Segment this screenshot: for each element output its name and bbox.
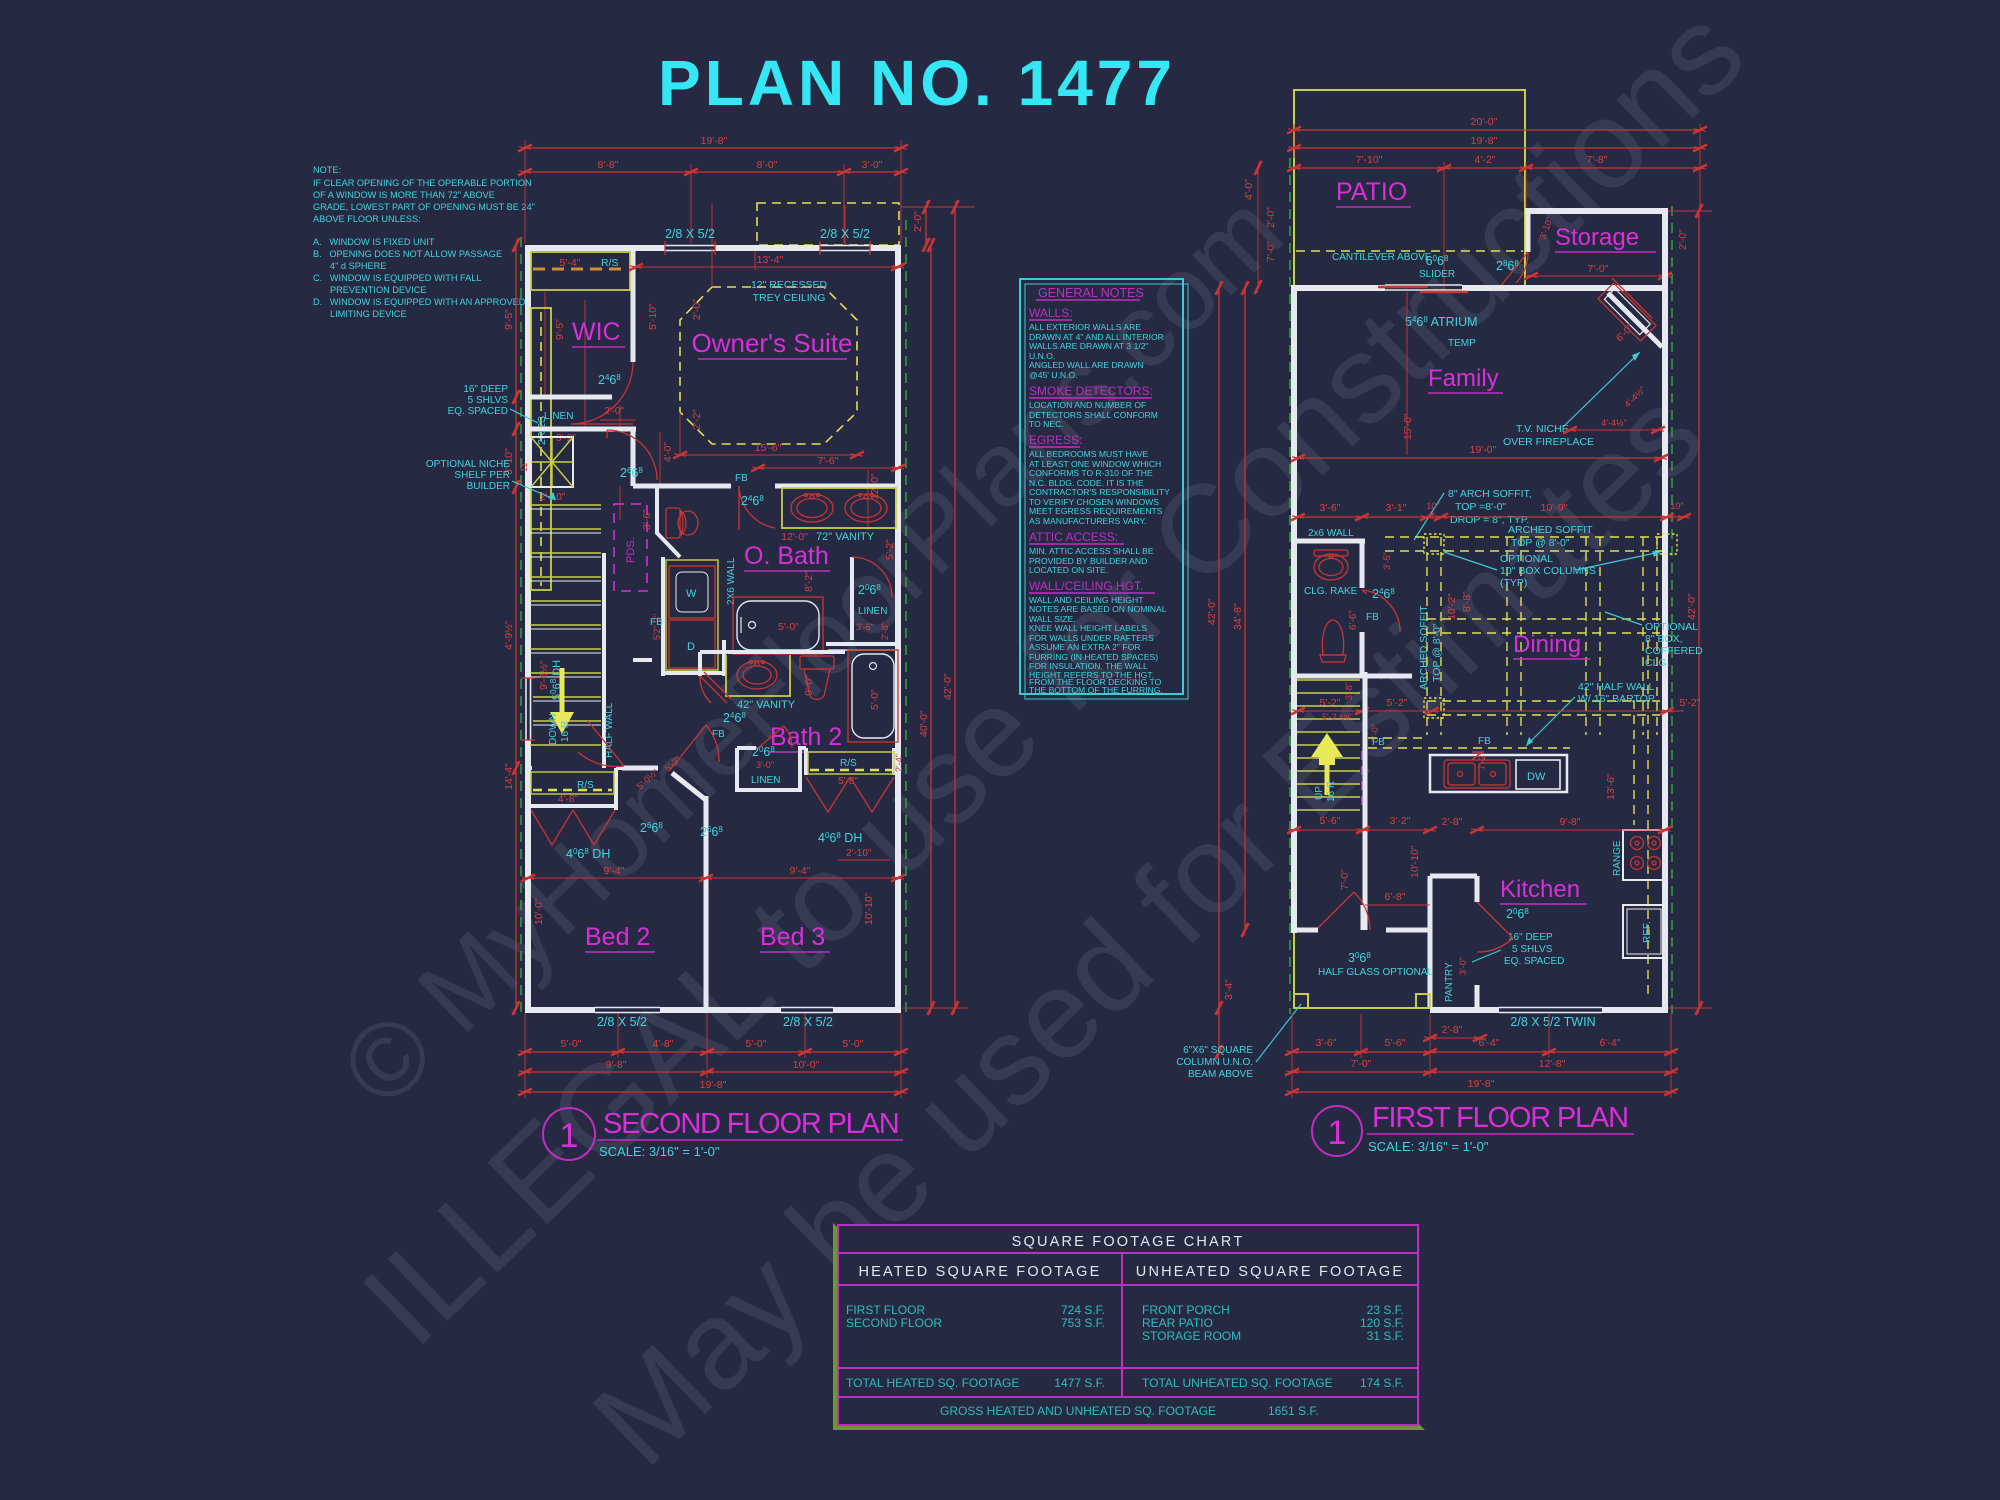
svg-text:6"X6" SQUARE: 6"X6" SQUARE (1183, 1045, 1253, 1056)
svg-text:EGRESS:: EGRESS: (1029, 433, 1082, 447)
svg-text:3'-6": 3'-6" (856, 622, 874, 632)
svg-text:TOP @ 8'-0": TOP @ 8'-0" (1511, 537, 1570, 549)
svg-text:LOCATION AND NUMBER OF: LOCATION AND NUMBER OF (1029, 400, 1146, 410)
svg-text:EQ. SPACED: EQ. SPACED (448, 406, 508, 417)
svg-text:STORAGE ROOM: STORAGE ROOM (1142, 1329, 1241, 1343)
svg-text:KNEE WALL HEIGHT LABELS: KNEE WALL HEIGHT LABELS (1029, 623, 1147, 633)
svg-text:D. WINDOW IS EQUIPPED WITH A: D. WINDOW IS EQUIPPED WITH AN APPROVED (313, 297, 526, 307)
svg-text:14'-4": 14'-4" (503, 763, 515, 790)
svg-text:31 S.F.: 31 S.F. (1367, 1329, 1404, 1343)
svg-text:8'-0": 8'-0" (757, 159, 778, 171)
svg-text:CANTILEVER ABOVE: CANTILEVER ABOVE (1332, 252, 1432, 263)
svg-text:10'-9": 10'-9" (1541, 502, 1568, 514)
svg-text:EQ. SPACED: EQ. SPACED (1504, 956, 1564, 967)
svg-text:Kitchen: Kitchen (1500, 876, 1580, 903)
svg-text:9'-8": 9'-8" (606, 1059, 627, 1071)
svg-text:5'-0": 5'-0" (869, 689, 881, 710)
svg-text:10": 10" (1426, 501, 1439, 511)
svg-text:8'-8": 8'-8" (1461, 591, 1473, 612)
svg-text:LINEN: LINEN (751, 775, 780, 786)
svg-text:OVER FIREPLACE: OVER FIREPLACE (1503, 436, 1594, 448)
svg-text:40'-0": 40'-0" (918, 710, 930, 737)
svg-text:4'-2": 4'-2" (1475, 154, 1496, 166)
svg-text:10'-10": 10'-10" (863, 892, 875, 925)
svg-text:1651 S.F.: 1651 S.F. (1268, 1404, 1319, 1418)
svg-text:SCALE: 3/16" = 1'-0": SCALE: 3/16" = 1'-0" (599, 1144, 720, 1159)
svg-text:2'-0": 2'-0" (604, 406, 624, 417)
svg-text:BUILDER: BUILDER (467, 481, 510, 492)
svg-text:ANGLED WALL ARE DRAWN: ANGLED WALL ARE DRAWN (1029, 360, 1144, 370)
svg-text:W: W (686, 588, 697, 600)
svg-text:4'-0": 4'-0" (663, 442, 674, 462)
svg-text:2x6 WALL: 2x6 WALL (1308, 528, 1354, 539)
svg-text:15'-6": 15'-6" (755, 442, 782, 454)
svg-text:10": 10" (1670, 501, 1683, 511)
svg-text:5'-0": 5'-0" (843, 1038, 864, 1050)
svg-text:ARCHED SOFFIT: ARCHED SOFFIT (1418, 605, 1430, 690)
svg-text:Bed 3: Bed 3 (760, 923, 825, 951)
svg-text:W/ 16" BARTOP: W/ 16" BARTOP (1578, 693, 1655, 705)
svg-text:OF A WINDOW IS MORE THAN 72" A: OF A WINDOW IS MORE THAN 72" ABOVE (313, 190, 495, 200)
svg-text:7'-0": 7'-0" (1588, 263, 1609, 275)
svg-text:9'-4": 9'-4" (790, 865, 811, 877)
svg-text:PATIO: PATIO (1336, 178, 1407, 206)
svg-text:GROSS HEATED AND UNHEATED SQ.: GROSS HEATED AND UNHEATED SQ. FOOTAGE (940, 1404, 1216, 1418)
svg-text:NOTES ARE BASED ON NOMINAL: NOTES ARE BASED ON NOMINAL (1029, 604, 1167, 614)
svg-text:R/S: R/S (840, 758, 857, 769)
svg-text:NOTE:: NOTE: (313, 165, 341, 175)
svg-text:ALL BEDROOMS MUST HAVE: ALL BEDROOMS MUST HAVE (1029, 449, 1148, 459)
svg-text:6'-4": 6'-4" (1479, 1037, 1500, 1049)
svg-text:CLG. RAKE: CLG. RAKE (1304, 586, 1358, 597)
svg-text:CONFORMS TO R-310 OF THE: CONFORMS TO R-310 OF THE (1029, 468, 1153, 478)
svg-text:ASSUME AN EXTRA 2" FOR: ASSUME AN EXTRA 2" FOR (1029, 642, 1140, 652)
svg-text:6'-4": 6'-4" (1600, 1037, 1621, 1049)
svg-text:GRADE, LOWEST PART OF OPENING: GRADE, LOWEST PART OF OPENING MUST BE 24… (313, 202, 535, 212)
svg-text:3'-6": 3'-6" (641, 509, 653, 530)
svg-text:5'-6": 5'-6" (1320, 815, 1341, 827)
svg-text:9'-5": 9'-5" (554, 319, 566, 340)
svg-text:4'-8": 4'-8" (653, 1038, 674, 1050)
svg-text:OPTIONAL NICHE: OPTIONAL NICHE (426, 459, 510, 470)
svg-text:9'-6½": 9'-6½" (538, 660, 550, 690)
svg-text:12'-8": 12'-8" (1539, 1058, 1566, 1070)
svg-text:LINEN: LINEN (858, 606, 887, 617)
svg-text:FB: FB (1366, 612, 1379, 623)
svg-text:UP: UP (1314, 786, 1325, 800)
svg-text:GENERAL NOTES: GENERAL NOTES (1038, 286, 1144, 300)
svg-text:9'-5": 9'-5" (503, 309, 515, 330)
svg-text:2/8 X 5/2: 2/8 X 5/2 (783, 1015, 833, 1029)
svg-text:REF.: REF. (1642, 921, 1653, 943)
svg-text:4'-0": 4'-0" (1243, 179, 1255, 200)
svg-text:2'-0": 2'-0" (912, 211, 924, 232)
svg-text:10'-10": 10'-10" (1409, 845, 1421, 878)
svg-text:Dining: Dining (1513, 631, 1581, 658)
svg-text:ABOVE FLOOR UNLESS:: ABOVE FLOOR UNLESS: (313, 214, 421, 224)
svg-text:COFFERED: COFFERED (1645, 645, 1703, 657)
svg-text:7'-2": 7'-2" (1477, 752, 1487, 770)
svg-text:3'-5": 3'-5" (1382, 552, 1392, 570)
svg-text:42'-0": 42'-0" (1206, 598, 1218, 625)
svg-text:34'-8": 34'-8" (1232, 603, 1244, 630)
svg-text:5 SHLVS: 5 SHLVS (468, 395, 509, 406)
svg-text:T.V. NICHE: T.V. NICHE (1516, 423, 1569, 435)
svg-text:2X6 WALL: 2X6 WALL (726, 557, 737, 605)
svg-text:2'-4": 2'-4" (894, 754, 904, 772)
svg-text:8'-2": 8'-2" (803, 571, 815, 592)
svg-text:23 S.F.: 23 S.F. (1367, 1303, 1404, 1317)
svg-text:MIN. ATTIC ACCESS SHALL BE: MIN. ATTIC ACCESS SHALL BE (1029, 546, 1154, 556)
svg-text:DW: DW (1527, 771, 1546, 783)
svg-text:Family: Family (1428, 365, 1499, 392)
svg-text:19'-8": 19'-8" (1468, 1078, 1495, 1090)
svg-text:5'-10": 5'-10" (647, 303, 659, 330)
svg-text:4'-9½": 4'-9½" (503, 620, 515, 650)
svg-text:Storage: Storage (1555, 224, 1639, 251)
svg-text:3'-6": 3'-6" (1320, 502, 1341, 514)
svg-text:7'-0": 7'-0" (1339, 869, 1351, 890)
svg-text:ATTIC ACCESS:: ATTIC ACCESS: (1029, 530, 1118, 544)
svg-text:UNHEATED SQUARE FOOTAGE: UNHEATED SQUARE FOOTAGE (1136, 1264, 1404, 1280)
svg-text:FB: FB (735, 473, 748, 484)
svg-text:42'-0": 42'-0" (942, 673, 954, 700)
svg-text:AS MANUFACTURERS VARY.: AS MANUFACTURERS VARY. (1029, 516, 1146, 526)
svg-text:13'-4": 13'-4" (757, 254, 784, 266)
svg-text:9'-0": 9'-0" (803, 675, 815, 696)
svg-text:174 S.F.: 174 S.F. (1360, 1376, 1404, 1390)
svg-text:5'-2": 5'-2" (1320, 697, 1341, 709)
svg-text:3'-6": 3'-6" (1316, 1037, 1337, 1049)
svg-text:16 R: 16 R (1326, 781, 1337, 802)
svg-text:7'-6": 7'-6" (818, 455, 839, 467)
svg-text:TOP =8'-0": TOP =8'-0" (1455, 501, 1506, 513)
svg-text:SCALE: 3/16" = 1'-0": SCALE: 3/16" = 1'-0" (1368, 1139, 1489, 1154)
svg-text:3'-2": 3'-2" (1390, 815, 1411, 827)
svg-text:@45' U.N.O.: @45' U.N.O. (1029, 370, 1078, 380)
svg-text:PLAN NO. 1477: PLAN NO. 1477 (658, 47, 1176, 119)
svg-text:16" DEEP: 16" DEEP (463, 384, 508, 395)
svg-text:2/8 X 5/2: 2/8 X 5/2 (597, 1015, 647, 1029)
svg-text:2'-0": 2'-0" (1265, 207, 1277, 228)
svg-text:1: 1 (1328, 1114, 1347, 1152)
svg-text:D: D (687, 641, 695, 653)
svg-text:8" ARCH SOFFIT,: 8" ARCH SOFFIT, (1448, 488, 1532, 500)
svg-text:WIC: WIC (572, 318, 621, 346)
svg-text:REAR PATIO: REAR PATIO (1142, 1316, 1213, 1330)
svg-text:RANGE: RANGE (1612, 840, 1623, 876)
svg-text:12" RECESSED: 12" RECESSED (751, 279, 828, 291)
svg-text:1477 S.F.: 1477 S.F. (1054, 1376, 1105, 1390)
svg-text:3'-0": 3'-0" (756, 760, 774, 770)
svg-text:5468 ATRIUM: 5468 ATRIUM (1405, 315, 1478, 329)
svg-text:3'-1": 3'-1" (1386, 502, 1407, 514)
svg-text:HEATED SQUARE FOOTAGE: HEATED SQUARE FOOTAGE (858, 1264, 1101, 1280)
svg-text:2'-8": 2'-8" (880, 622, 890, 640)
svg-text:R/S: R/S (577, 780, 594, 791)
svg-text:1: 1 (560, 1117, 579, 1155)
svg-text:15'-0": 15'-0" (1402, 413, 1414, 440)
svg-text:TO NEC.: TO NEC. (1029, 419, 1064, 429)
svg-text:4068 DH: 4068 DH (818, 831, 862, 845)
svg-text:6'-8": 6'-8" (1385, 891, 1406, 903)
svg-text:19'-8": 19'-8" (700, 1079, 727, 1091)
svg-text:MEET EGRESS REQUIREMENTS: MEET EGRESS REQUIREMENTS (1029, 506, 1163, 516)
svg-text:9'-4": 9'-4" (604, 865, 625, 877)
svg-text:7'-0": 7'-0" (1351, 1058, 1372, 1070)
svg-text:SHELF PER: SHELF PER (454, 470, 510, 481)
svg-text:2/8 X 5/2: 2/8 X 5/2 (820, 227, 870, 241)
svg-text:TREY CEILING: TREY CEILING (753, 292, 826, 304)
svg-text:WALLS:: WALLS: (1029, 306, 1073, 320)
svg-text:4'-4½": 4'-4½" (1601, 418, 1626, 428)
svg-text:42" HALF WALL: 42" HALF WALL (1578, 681, 1654, 693)
svg-text:ALL EXTERIOR WALLS ARE: ALL EXTERIOR WALLS ARE (1029, 322, 1141, 332)
svg-text:BEAM ABOVE: BEAM ABOVE (1188, 1069, 1253, 1080)
svg-text:9'-8": 9'-8" (1560, 816, 1581, 828)
svg-text:SECOND FLOOR PLAN: SECOND FLOOR PLAN (603, 1108, 898, 1140)
svg-text:2'-0": 2'-0" (691, 299, 703, 320)
svg-text:4" d SPHERE: 4" d SPHERE (330, 261, 386, 271)
svg-text:B. OPENING DOES NOT ALLOW PA: B. OPENING DOES NOT ALLOW PASSAGE (313, 249, 502, 259)
svg-text:WALL/CEILING HGT.: WALL/CEILING HGT. (1029, 579, 1143, 593)
svg-text:20'-0": 20'-0" (1471, 116, 1498, 128)
svg-text:42'-0": 42'-0" (1686, 593, 1698, 620)
svg-text:3'-4": 3'-4" (1223, 979, 1235, 1000)
svg-text:SQUARE FOOTAGE CHART: SQUARE FOOTAGE CHART (1012, 1234, 1245, 1250)
svg-text:7'-0": 7'-0" (1265, 241, 1277, 262)
svg-text:10" BOX COLUMNS: 10" BOX COLUMNS (1500, 565, 1596, 577)
svg-text:Bath 2: Bath 2 (770, 723, 842, 751)
svg-text:(TYP): (TYP) (1500, 577, 1527, 589)
svg-text:16 R: 16 R (560, 721, 571, 742)
svg-text:11": 11" (519, 459, 529, 472)
svg-text:4'-8": 4'-8" (558, 794, 578, 805)
svg-text:Owner's Suite: Owner's Suite (691, 328, 852, 358)
svg-text:R/S: R/S (601, 257, 619, 269)
svg-text:7'-8": 7'-8" (1587, 154, 1608, 166)
svg-text:COLUMN U.N.O.: COLUMN U.N.O. (1176, 1057, 1253, 1068)
svg-text:724 S.F.: 724 S.F. (1061, 1303, 1105, 1317)
svg-text:FB: FB (1478, 736, 1491, 747)
svg-text:LIMITING DEVICE: LIMITING DEVICE (330, 309, 407, 319)
svg-text:PDS.: PDS. (625, 537, 637, 563)
svg-text:TOTAL HEATED SQ. FOOTAGE: TOTAL HEATED SQ. FOOTAGE (846, 1376, 1019, 1390)
svg-text:WALLS ARE DRAWN AT 3 1/2": WALLS ARE DRAWN AT 3 1/2" (1029, 341, 1149, 351)
svg-text:2'-0": 2'-0" (1677, 229, 1689, 250)
svg-text:HALF WALL: HALF WALL (604, 702, 615, 758)
svg-text:2/8 X 5/2 TWIN: 2/8 X 5/2 TWIN (1510, 1015, 1595, 1029)
svg-text:ARCHED SOFFIT: ARCHED SOFFIT (1508, 524, 1593, 536)
svg-text:3'-0": 3'-0" (1458, 957, 1468, 975)
svg-text:FRONT PORCH: FRONT PORCH (1142, 1303, 1230, 1317)
svg-text:120 S.F.: 120 S.F. (1360, 1316, 1404, 1330)
svg-text:SMOKE DETECTORS:: SMOKE DETECTORS: (1029, 384, 1153, 398)
svg-text:7'-10": 7'-10" (1356, 154, 1383, 166)
svg-text:3'-0": 3'-0" (862, 159, 883, 171)
svg-text:5'-2": 5'-2" (1387, 697, 1408, 709)
svg-text:5'-0": 5'-0" (778, 621, 799, 633)
svg-text:HALF GLASS OPTIONAL: HALF GLASS OPTIONAL (1318, 967, 1433, 978)
svg-text:5'-2": 5'-2" (1680, 697, 1701, 709)
svg-text:19'-8": 19'-8" (1471, 135, 1498, 147)
svg-text:5'-2": 5'-2" (884, 539, 896, 560)
svg-text:TEMP: TEMP (1448, 338, 1476, 349)
svg-text:5 SHLVS: 5 SHLVS (1512, 944, 1553, 955)
svg-text:19'-0": 19'-0" (1470, 444, 1497, 456)
svg-text:OPTIONAL: OPTIONAL (1500, 553, 1553, 565)
svg-text:8" BOX,: 8" BOX, (1645, 633, 1683, 645)
svg-text:PREVENTION DEVICE: PREVENTION DEVICE (330, 285, 427, 295)
svg-text:IF CLEAR OPENING OF THE OPERAB: IF CLEAR OPENING OF THE OPERABLE PORTION (313, 178, 532, 188)
svg-text:13'-6": 13'-6" (1605, 773, 1617, 800)
svg-text:19'-8": 19'-8" (701, 135, 728, 147)
svg-text:OPTIONAL: OPTIONAL (1645, 621, 1698, 633)
svg-text:2/8 X 5/2: 2/8 X 5/2 (665, 227, 715, 241)
svg-text:O. Bath: O. Bath (744, 542, 829, 570)
svg-text:2'-8": 2'-8" (1442, 1024, 1463, 1036)
svg-text:A. WINDOW IS FIXED UNIT: A. WINDOW IS FIXED UNIT (313, 237, 435, 247)
svg-text:LOCATED ON SITE.: LOCATED ON SITE. (1029, 565, 1108, 575)
svg-text:2'-8": 2'-8" (1442, 816, 1463, 828)
svg-text:10'-0": 10'-0" (793, 1059, 820, 1071)
svg-text:3'-8": 3'-8" (1344, 682, 1354, 700)
svg-text:DOWN: DOWN (548, 713, 559, 745)
svg-text:5'-0": 5'-0" (561, 1038, 582, 1050)
svg-text:753 S.F.: 753 S.F. (1061, 1316, 1105, 1330)
svg-text:FIRST FLOOR: FIRST FLOOR (846, 1303, 925, 1317)
svg-text:TOTAL UNHEATED SQ. FOOTAGE: TOTAL UNHEATED SQ. FOOTAGE (1142, 1376, 1333, 1390)
svg-text:FIRST FLOOR PLAN: FIRST FLOOR PLAN (1372, 1102, 1628, 1134)
svg-text:10'-0": 10'-0" (533, 898, 545, 925)
svg-text:C. WINDOW IS EQUIPPED WITH F: C. WINDOW IS EQUIPPED WITH FALL (313, 273, 481, 283)
svg-text:5'-0": 5'-0" (746, 1038, 767, 1050)
svg-text:6'-6": 6'-6" (1348, 610, 1359, 630)
svg-text:PANTRY: PANTRY (1444, 962, 1455, 1002)
svg-text:8'-8": 8'-8" (598, 159, 619, 171)
svg-text:SECOND FLOOR: SECOND FLOOR (846, 1316, 942, 1330)
svg-text:2'-2": 2'-2" (691, 409, 703, 430)
svg-text:FB: FB (1372, 737, 1385, 748)
svg-text:42" VANITY: 42" VANITY (737, 699, 796, 711)
svg-text:5'-4": 5'-4" (560, 257, 581, 269)
svg-text:4068 DH: 4068 DH (566, 847, 610, 861)
svg-text:THE BOTTOM OF THE FURRING.: THE BOTTOM OF THE FURRING. (1029, 685, 1163, 695)
svg-text:Bed 2: Bed 2 (585, 923, 650, 951)
svg-text:10'-2": 10'-2" (1446, 593, 1458, 620)
svg-text:16" DEEP: 16" DEEP (1508, 932, 1553, 943)
svg-text:CONTRACTOR'S RESPONSIBILITY: CONTRACTOR'S RESPONSIBILITY (1029, 487, 1170, 497)
svg-text:2'-10": 2'-10" (846, 848, 872, 859)
svg-text:5'-6": 5'-6" (1385, 1037, 1406, 1049)
svg-text:FB: FB (650, 617, 663, 628)
svg-text:SLIDER: SLIDER (1419, 269, 1455, 280)
svg-text:LINEN: LINEN (544, 411, 573, 422)
